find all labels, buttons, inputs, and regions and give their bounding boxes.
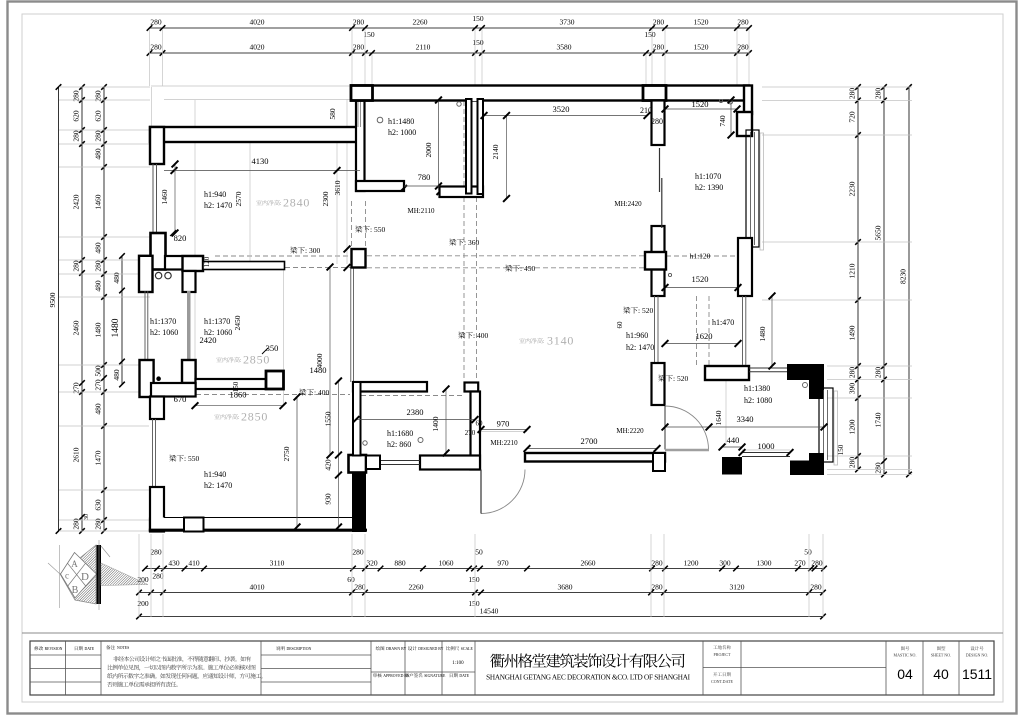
svg-text:2610: 2610 xyxy=(72,447,81,462)
svg-text:60: 60 xyxy=(616,321,624,329)
svg-text:DATE: DATE xyxy=(459,674,469,678)
svg-text:280: 280 xyxy=(811,559,823,568)
svg-text:280: 280 xyxy=(651,583,663,592)
svg-text:1300: 1300 xyxy=(757,559,772,568)
svg-text:SHEET NO.: SHEET NO. xyxy=(931,653,951,658)
svg-text:h1:960: h1:960 xyxy=(626,331,648,340)
svg-text:2850: 2850 xyxy=(241,410,268,424)
svg-text:480: 480 xyxy=(94,242,103,254)
svg-text:1000: 1000 xyxy=(758,441,775,451)
svg-text:: 550: : 550 xyxy=(370,225,385,234)
svg-text:DESCRIPTION: DESCRIPTION xyxy=(287,647,312,651)
svg-text:: 550: : 550 xyxy=(184,454,199,463)
svg-text:2460: 2460 xyxy=(72,320,81,335)
svg-text:280: 280 xyxy=(848,367,857,379)
svg-text:h2: 1470: h2: 1470 xyxy=(204,481,232,490)
svg-text:MH:2210: MH:2210 xyxy=(490,439,518,447)
svg-text:1:100: 1:100 xyxy=(452,661,464,666)
svg-text:2850: 2850 xyxy=(243,353,270,367)
svg-text:1460: 1460 xyxy=(160,189,169,204)
svg-text:DESIGNED BY: DESIGNED BY xyxy=(418,647,443,651)
svg-text:780: 780 xyxy=(418,172,431,182)
svg-text:2660: 2660 xyxy=(581,559,596,568)
svg-text:MH:2220: MH:2220 xyxy=(616,427,644,435)
svg-text:280: 280 xyxy=(653,18,665,27)
svg-text:480: 480 xyxy=(112,369,121,381)
svg-text:4020: 4020 xyxy=(250,43,265,52)
svg-text:280: 280 xyxy=(651,117,663,126)
svg-text:h2: 860: h2: 860 xyxy=(387,440,411,449)
svg-text:4130: 4130 xyxy=(252,156,269,166)
svg-text:h2: 1060: h2: 1060 xyxy=(150,328,178,337)
svg-text:1460: 1460 xyxy=(94,194,103,209)
svg-text:h2: 1390: h2: 1390 xyxy=(695,183,723,192)
svg-text:280: 280 xyxy=(150,548,162,557)
svg-text:300: 300 xyxy=(719,559,731,568)
svg-text:: 360: : 360 xyxy=(464,238,479,247)
svg-text:: 450: : 450 xyxy=(520,264,535,273)
svg-text:: 400: : 400 xyxy=(314,388,329,397)
svg-text:970: 970 xyxy=(497,419,510,429)
svg-text:500: 500 xyxy=(94,365,103,377)
svg-text:h2: 1080: h2: 1080 xyxy=(744,396,772,405)
svg-text:630: 630 xyxy=(94,499,103,511)
svg-text:c: c xyxy=(65,571,69,581)
svg-text:: 520: : 520 xyxy=(673,374,688,383)
svg-text:150: 150 xyxy=(468,575,480,584)
svg-text:CONT.DATE: CONT.DATE xyxy=(711,679,733,684)
svg-text:150: 150 xyxy=(837,444,845,455)
svg-text:3610: 3610 xyxy=(333,180,342,195)
svg-text:880: 880 xyxy=(394,559,406,568)
svg-text:1511: 1511 xyxy=(962,666,992,682)
svg-text:1620: 1620 xyxy=(696,331,713,341)
svg-text:1480: 1480 xyxy=(94,322,103,337)
svg-text:1200: 1200 xyxy=(684,559,699,568)
svg-text:2420: 2420 xyxy=(72,194,81,209)
svg-text:280: 280 xyxy=(874,462,883,474)
svg-text:D: D xyxy=(81,571,89,583)
svg-text:280: 280 xyxy=(651,559,663,568)
svg-text:280: 280 xyxy=(352,548,364,557)
svg-text:2260: 2260 xyxy=(409,583,424,592)
svg-text:280: 280 xyxy=(72,130,81,142)
svg-text:120: 120 xyxy=(203,256,211,267)
svg-text:1200: 1200 xyxy=(848,419,857,434)
svg-text:04: 04 xyxy=(897,666,913,682)
svg-text:14540: 14540 xyxy=(480,607,499,616)
svg-text:320: 320 xyxy=(366,559,378,568)
svg-text:3140: 3140 xyxy=(547,334,574,348)
svg-text:280: 280 xyxy=(653,43,665,52)
svg-text:MH:2110: MH:2110 xyxy=(408,207,435,215)
svg-text:580: 580 xyxy=(328,108,337,120)
svg-text:DESIGN NO.: DESIGN NO. xyxy=(966,653,988,658)
svg-text:SCALE: SCALE xyxy=(461,647,474,651)
svg-text:280: 280 xyxy=(353,18,365,27)
svg-text:740: 740 xyxy=(718,115,727,127)
svg-text:h2: 1000: h2: 1000 xyxy=(388,128,416,137)
svg-text:60: 60 xyxy=(476,420,484,428)
svg-text:3680: 3680 xyxy=(558,583,573,592)
svg-text:30: 30 xyxy=(84,514,90,520)
svg-text:h2: 1470: h2: 1470 xyxy=(626,343,654,352)
svg-text:280: 280 xyxy=(874,88,883,100)
svg-text:: 300: : 300 xyxy=(305,246,320,255)
svg-text:2110: 2110 xyxy=(416,43,431,52)
svg-text:1520: 1520 xyxy=(692,274,709,284)
svg-text:5650: 5650 xyxy=(874,225,883,240)
svg-text:50: 50 xyxy=(475,548,483,557)
svg-text:1210: 1210 xyxy=(848,263,857,278)
svg-text:430: 430 xyxy=(168,559,180,568)
svg-text:9500: 9500 xyxy=(48,292,57,307)
svg-text:A: A xyxy=(71,559,78,569)
svg-text:4010: 4010 xyxy=(250,583,265,592)
svg-text:3120: 3120 xyxy=(730,583,745,592)
svg-text:3110: 3110 xyxy=(270,559,285,568)
svg-text:820: 820 xyxy=(174,233,187,243)
svg-text:3580: 3580 xyxy=(557,43,572,52)
svg-text:480: 480 xyxy=(94,403,103,415)
svg-text:50: 50 xyxy=(804,548,812,557)
svg-text:: 520: : 520 xyxy=(638,306,653,315)
svg-text:280: 280 xyxy=(150,18,162,27)
svg-text:390: 390 xyxy=(848,383,857,395)
svg-text:210: 210 xyxy=(640,106,652,115)
svg-text:410: 410 xyxy=(188,559,200,568)
svg-text:3730: 3730 xyxy=(560,18,575,27)
svg-text:280: 280 xyxy=(737,18,749,27)
svg-text:2570: 2570 xyxy=(234,191,243,206)
svg-text:h1:940: h1:940 xyxy=(204,470,226,479)
svg-text:150: 150 xyxy=(472,14,484,23)
svg-text:DATE: DATE xyxy=(85,647,95,651)
svg-text:2700: 2700 xyxy=(581,436,598,446)
svg-text:280: 280 xyxy=(94,260,103,272)
svg-text:970: 970 xyxy=(497,559,509,568)
svg-text:1550: 1550 xyxy=(324,411,333,426)
svg-text:h1:1480: h1:1480 xyxy=(388,117,414,126)
svg-text:150: 150 xyxy=(232,381,240,392)
svg-text:280: 280 xyxy=(354,583,366,592)
svg-text:2840: 2840 xyxy=(283,196,310,210)
svg-text:270: 270 xyxy=(94,379,103,391)
svg-text:3340: 3340 xyxy=(737,414,754,424)
svg-text:2000: 2000 xyxy=(424,142,433,157)
svg-text:8230: 8230 xyxy=(899,269,908,284)
svg-text:: 400: : 400 xyxy=(473,331,488,340)
svg-text:h1:1370: h1:1370 xyxy=(150,317,176,326)
svg-text:40: 40 xyxy=(933,666,949,682)
svg-text:60: 60 xyxy=(347,575,355,584)
svg-text:h1:470: h1:470 xyxy=(712,318,734,327)
svg-text:NOTES: NOTES xyxy=(117,646,129,650)
svg-text:1640: 1640 xyxy=(714,410,723,425)
svg-text:2420: 2420 xyxy=(200,335,217,345)
svg-text:270: 270 xyxy=(465,429,476,437)
svg-text:2260: 2260 xyxy=(413,18,428,27)
svg-text:1400: 1400 xyxy=(431,416,440,431)
svg-text:280: 280 xyxy=(810,583,822,592)
svg-text:280: 280 xyxy=(737,43,749,52)
svg-text:1060: 1060 xyxy=(439,559,454,568)
svg-text:270: 270 xyxy=(794,559,806,568)
svg-text:1490: 1490 xyxy=(848,325,857,340)
svg-text:2380: 2380 xyxy=(407,407,424,417)
svg-text:MASTIC NO.: MASTIC NO. xyxy=(894,653,917,658)
svg-text:280: 280 xyxy=(848,88,857,100)
svg-text:620: 620 xyxy=(94,110,103,122)
svg-text:4020: 4020 xyxy=(250,18,265,27)
svg-text:280: 280 xyxy=(152,572,164,581)
svg-text:1520: 1520 xyxy=(694,43,709,52)
svg-text:SHANGHAI GETANG AEC DECORATION: SHANGHAI GETANG AEC DECORATION &CO. LTD … xyxy=(486,674,690,682)
svg-text:PROJECT: PROJECT xyxy=(714,652,731,657)
svg-text:280: 280 xyxy=(72,260,81,272)
svg-text:440: 440 xyxy=(727,435,740,445)
svg-text:h1:940: h1:940 xyxy=(204,190,226,199)
svg-text:1480: 1480 xyxy=(111,318,121,337)
svg-text:280: 280 xyxy=(150,43,162,52)
svg-text:280: 280 xyxy=(874,367,883,379)
svg-text:2450: 2450 xyxy=(233,315,242,330)
svg-text:h1:120: h1:120 xyxy=(690,252,711,261)
svg-text:480: 480 xyxy=(94,148,103,160)
svg-text:3520: 3520 xyxy=(553,104,570,114)
svg-text:2300: 2300 xyxy=(321,191,330,206)
svg-text:150: 150 xyxy=(468,599,480,608)
svg-text:1740: 1740 xyxy=(874,412,883,427)
svg-text:MH:2420: MH:2420 xyxy=(614,200,642,208)
svg-text:280: 280 xyxy=(848,457,857,469)
svg-text:2140: 2140 xyxy=(491,144,500,159)
svg-text:670: 670 xyxy=(174,394,187,404)
svg-text:h1:1370: h1:1370 xyxy=(204,317,230,326)
svg-text:1520: 1520 xyxy=(692,99,709,109)
svg-text:REVISION: REVISION xyxy=(45,647,63,651)
svg-text:280: 280 xyxy=(353,43,365,52)
svg-text:SIGNATURE: SIGNATURE xyxy=(424,674,446,678)
svg-text:1470: 1470 xyxy=(94,450,103,465)
svg-text:620: 620 xyxy=(72,110,81,122)
svg-text:1520: 1520 xyxy=(694,18,709,27)
svg-text:280: 280 xyxy=(94,130,103,142)
svg-text:480: 480 xyxy=(94,280,103,292)
svg-text:720: 720 xyxy=(848,111,857,123)
svg-text:2750: 2750 xyxy=(282,446,291,461)
svg-text:2230: 2230 xyxy=(848,181,857,196)
svg-text:B: B xyxy=(72,585,79,596)
svg-text:h2: 1470: h2: 1470 xyxy=(204,201,232,210)
svg-text:APPROVED BY: APPROVED BY xyxy=(383,674,410,678)
svg-text:1480: 1480 xyxy=(310,365,327,375)
svg-text:h1:1680: h1:1680 xyxy=(387,429,413,438)
svg-text:420: 420 xyxy=(324,459,333,471)
svg-text:930: 930 xyxy=(324,493,333,505)
svg-text:DRAWN BY: DRAWN BY xyxy=(386,647,407,651)
svg-text:h1:1380: h1:1380 xyxy=(744,384,770,393)
svg-text:1480: 1480 xyxy=(758,326,767,341)
svg-text:150: 150 xyxy=(644,30,656,39)
svg-text:h1:1070: h1:1070 xyxy=(695,172,721,181)
